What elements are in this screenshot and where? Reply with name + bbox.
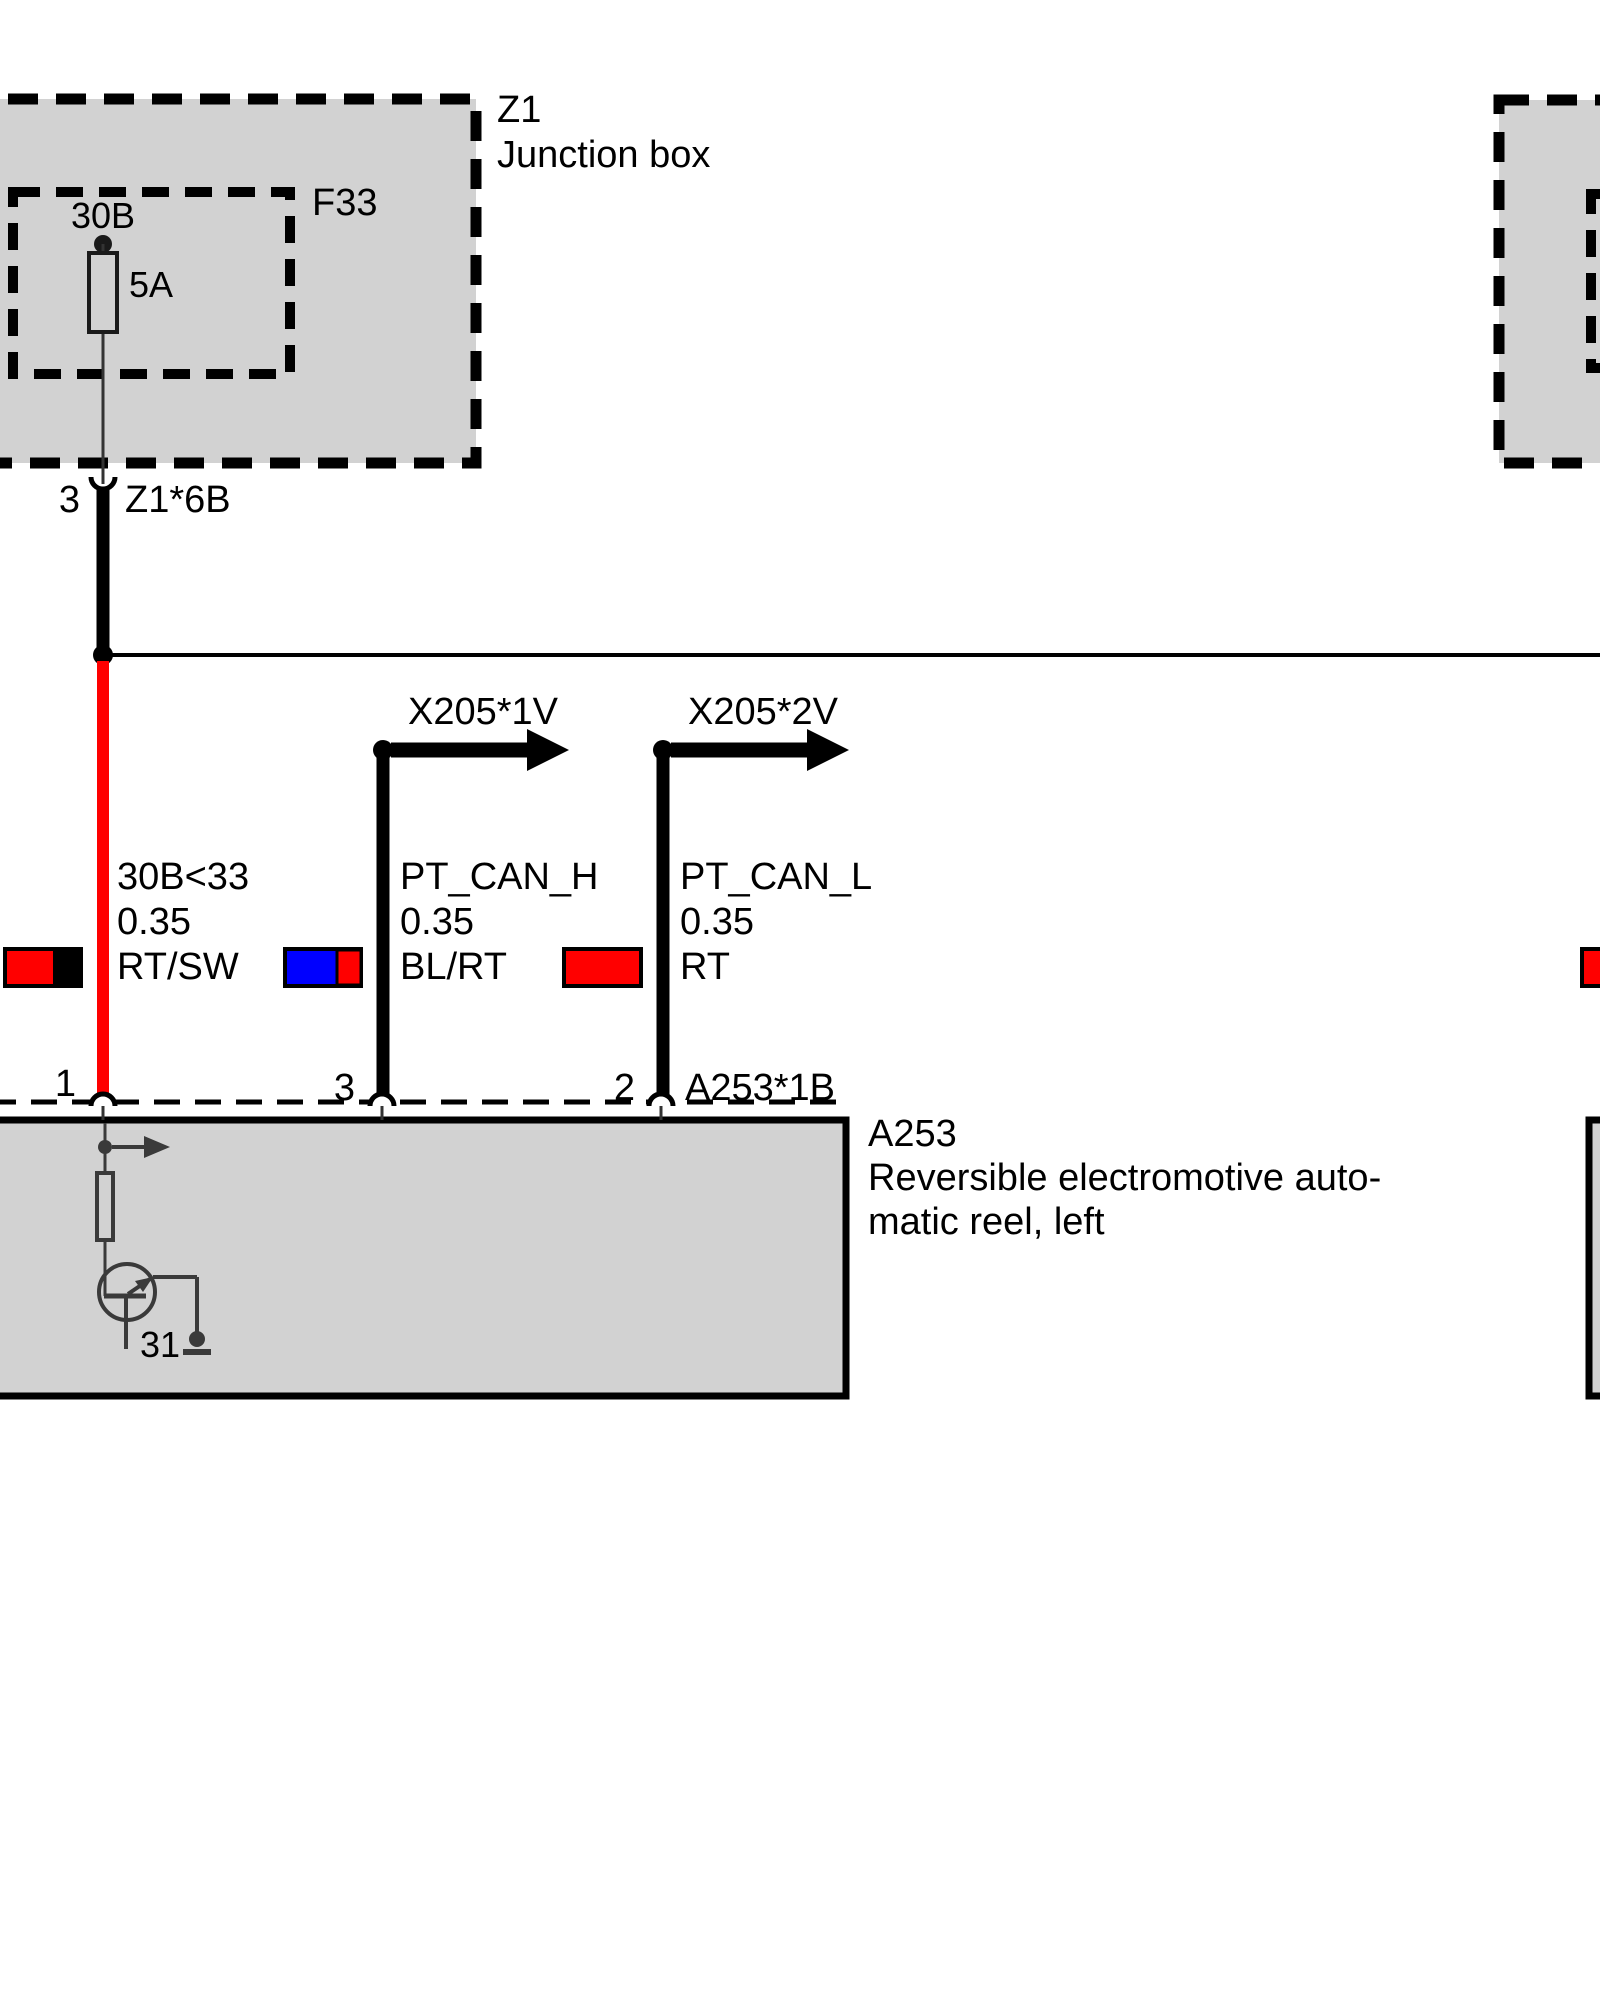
a253-description-line1: Reversible electromotive auto- bbox=[868, 1157, 1381, 1199]
wire2-circuit-label: PT_CAN_H bbox=[400, 856, 599, 898]
wire3-gauge-label: 0.35 bbox=[680, 901, 754, 943]
wire-color-swatch-rt bbox=[564, 949, 641, 986]
a253-description-line2: matic reel, left bbox=[868, 1201, 1105, 1243]
device-box-a253 bbox=[0, 1120, 846, 1396]
a253-pin3-number: 3 bbox=[334, 1067, 355, 1109]
wire2-color-code-label: BL/RT bbox=[400, 946, 507, 988]
wire1-circuit-label: 30B<33 bbox=[117, 856, 249, 898]
wire3-circuit-label: PT_CAN_L bbox=[680, 856, 872, 898]
a253-pin1-number: 1 bbox=[55, 1063, 76, 1105]
pin2-connector-icon bbox=[649, 1094, 673, 1106]
wire2-gauge-label: 0.35 bbox=[400, 901, 474, 943]
a253-pin2-number: 2 bbox=[614, 1067, 635, 1109]
wire-color-swatch-blrt bbox=[285, 949, 361, 986]
z1-pin-number: 3 bbox=[59, 479, 80, 521]
wire-color-swatch-right-partial bbox=[1582, 949, 1600, 986]
wire3-color-code-label: RT bbox=[680, 946, 730, 988]
f33-label: F33 bbox=[312, 182, 377, 224]
x205-1v-arrowhead-icon bbox=[527, 729, 569, 771]
swatch-blrt-red bbox=[337, 950, 361, 985]
a253-id-label: A253 bbox=[868, 1113, 957, 1155]
wire1-gauge-label: 0.35 bbox=[117, 901, 191, 943]
pin1-connector-icon bbox=[91, 1094, 115, 1106]
z1-name-label: Junction box bbox=[497, 134, 710, 176]
fuse-source-label: 30B bbox=[71, 195, 135, 236]
z1-id-label: Z1 bbox=[497, 89, 541, 131]
fuse-body bbox=[89, 253, 117, 332]
wire1-color-code-label: RT/SW bbox=[117, 946, 239, 988]
device-box-right-partial bbox=[1589, 1120, 1600, 1396]
internal-junction-dot bbox=[98, 1140, 112, 1154]
ground-dot bbox=[189, 1331, 205, 1347]
junction-box-right-partial bbox=[1499, 100, 1600, 463]
swatch-rtsw-black bbox=[53, 947, 81, 988]
wire-color-swatch-rtsw bbox=[5, 947, 81, 988]
a253-connector-label: A253*1B bbox=[685, 1067, 835, 1109]
x205-2v-arrowhead-icon bbox=[807, 729, 849, 771]
ground-terminal-label: 31 bbox=[140, 1324, 180, 1365]
x205-2v-label: X205*2V bbox=[688, 691, 839, 733]
x205-1v-label: X205*1V bbox=[408, 691, 559, 733]
z1-connector-label: Z1*6B bbox=[125, 479, 231, 521]
pin3-connector-icon bbox=[370, 1094, 394, 1106]
junction-box-z1 bbox=[0, 99, 476, 463]
fuse-rating-label: 5A bbox=[129, 264, 173, 305]
wiring-diagram: Z1 Junction box F33 30B 5A 3 Z1*6B X205*… bbox=[0, 0, 1600, 2000]
